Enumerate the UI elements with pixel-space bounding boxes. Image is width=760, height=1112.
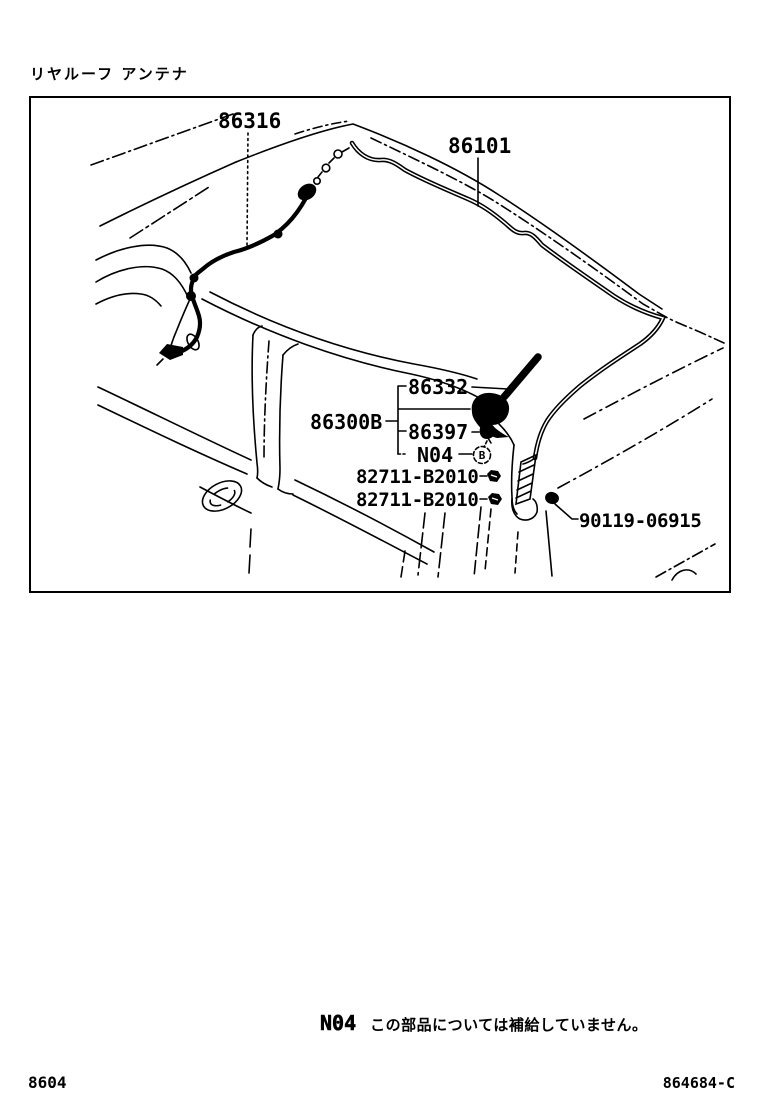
screw-82711-bottom — [488, 493, 502, 505]
part-label-82711-bottom: 82711-B2010 — [356, 489, 479, 511]
part-label-82711-top: 82711-B2010 — [356, 466, 479, 488]
parts-catalog-page: リヤルーフ アンテナ — [0, 0, 760, 1112]
part-label-N04: N04 — [417, 443, 453, 467]
circled-letter: B — [479, 449, 486, 462]
part-label-86300B: 86300B — [310, 410, 382, 434]
screw-82711-top — [487, 470, 501, 482]
mounting-bracket — [512, 445, 538, 520]
supply-note: N04 この部品については補給していません。 — [320, 1011, 647, 1035]
n04-circled-b: B — [474, 447, 491, 464]
page-title: リヤルーフ アンテナ — [30, 63, 189, 84]
door-handle-oval — [197, 475, 246, 518]
footer-figure-code: 864684-C — [663, 1074, 735, 1092]
bolt-90119 — [544, 490, 561, 505]
note-code: N04 — [320, 1011, 356, 1035]
part-label-86101: 86101 — [448, 134, 511, 158]
note-text: この部品については補給していません。 — [370, 1014, 647, 1035]
rear-roof-antenna-diagram: B — [31, 98, 729, 591]
part-label-86316: 86316 — [218, 109, 281, 133]
diagram-frame: B — [29, 96, 731, 593]
leader-lines — [247, 133, 578, 519]
nut-86397 — [480, 423, 495, 439]
antenna-mast — [504, 357, 538, 397]
footer-page-code: 8604 — [28, 1073, 67, 1092]
part-label-86397: 86397 — [408, 420, 468, 444]
part-label-86332: 86332 — [408, 375, 468, 399]
antenna-assembly: B — [472, 357, 561, 520]
part-label-90119: 90119-06915 — [579, 510, 702, 532]
